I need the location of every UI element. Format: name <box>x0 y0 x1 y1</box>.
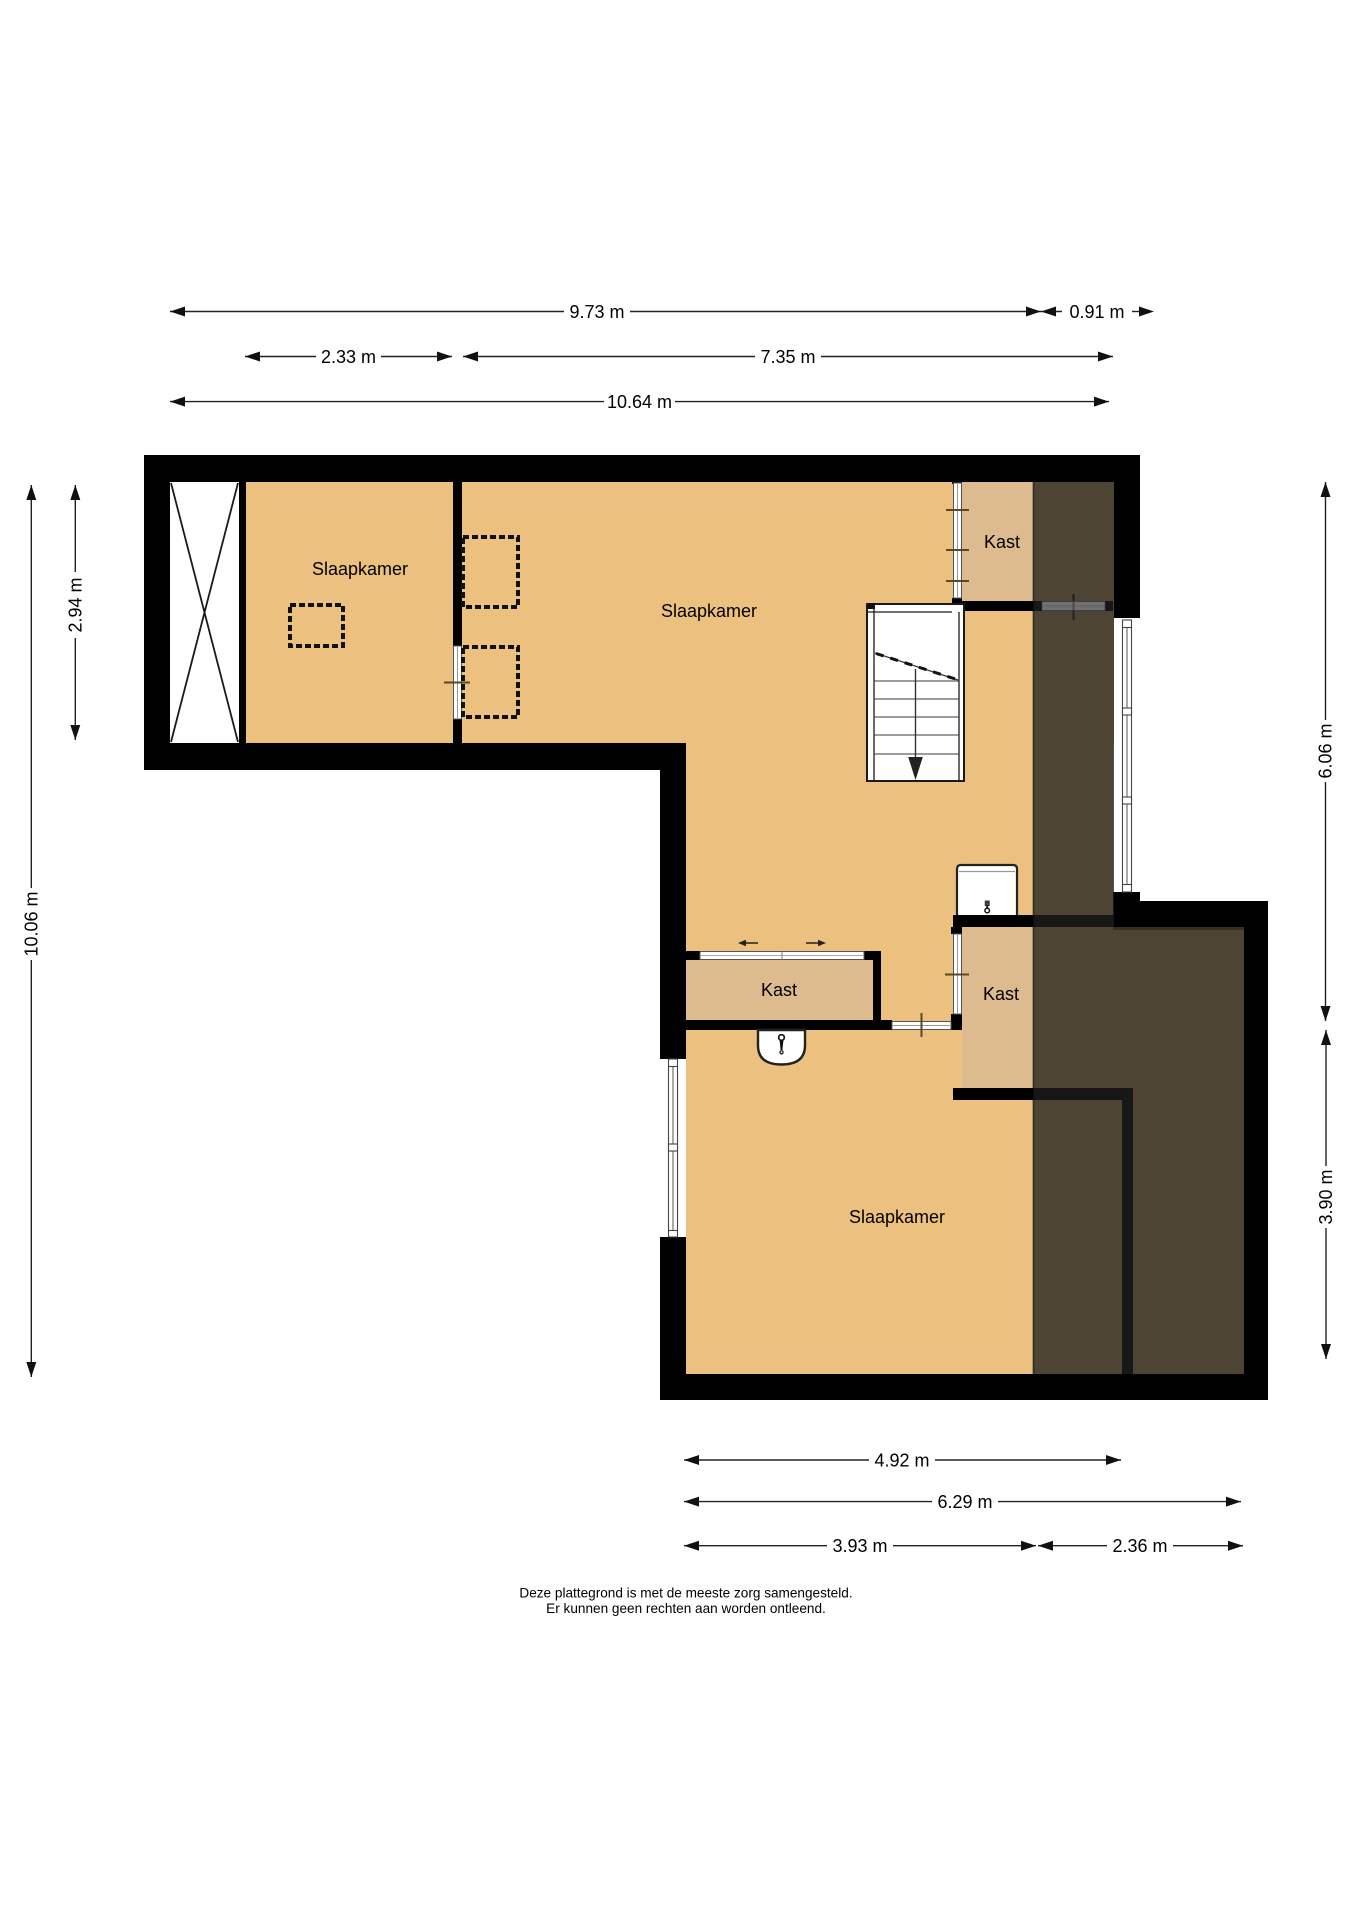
svg-text:Kast: Kast <box>983 984 1019 1004</box>
svg-text:Er kunnen geen rechten aan wor: Er kunnen geen rechten aan worden ontlee… <box>546 1601 826 1616</box>
svg-text:3.90 m: 3.90 m <box>1316 1169 1336 1224</box>
svg-text:Kast: Kast <box>761 980 797 1000</box>
svg-text:7.35 m: 7.35 m <box>760 347 815 367</box>
svg-text:6.06 m: 6.06 m <box>1316 723 1336 778</box>
svg-text:Deze plattegrond is met de mee: Deze plattegrond is met de meeste zorg s… <box>519 1586 852 1601</box>
svg-text:3.93 m: 3.93 m <box>832 1536 887 1556</box>
svg-text:9.73 m: 9.73 m <box>569 302 624 322</box>
svg-text:4.92 m: 4.92 m <box>874 1451 929 1471</box>
svg-text:Slaapkamer: Slaapkamer <box>312 559 408 579</box>
svg-text:Slaapkamer: Slaapkamer <box>661 601 757 621</box>
svg-text:10.64 m: 10.64 m <box>607 392 672 412</box>
svg-text:Kast: Kast <box>984 532 1020 552</box>
svg-text:2.94 m: 2.94 m <box>66 577 86 632</box>
svg-text:0.91 m: 0.91 m <box>1069 302 1124 322</box>
svg-text:10.06 m: 10.06 m <box>22 891 42 956</box>
svg-text:6.29 m: 6.29 m <box>937 1492 992 1512</box>
svg-text:2.33 m: 2.33 m <box>321 347 376 367</box>
svg-text:Slaapkamer: Slaapkamer <box>849 1207 945 1227</box>
svg-text:2.36 m: 2.36 m <box>1112 1536 1167 1556</box>
